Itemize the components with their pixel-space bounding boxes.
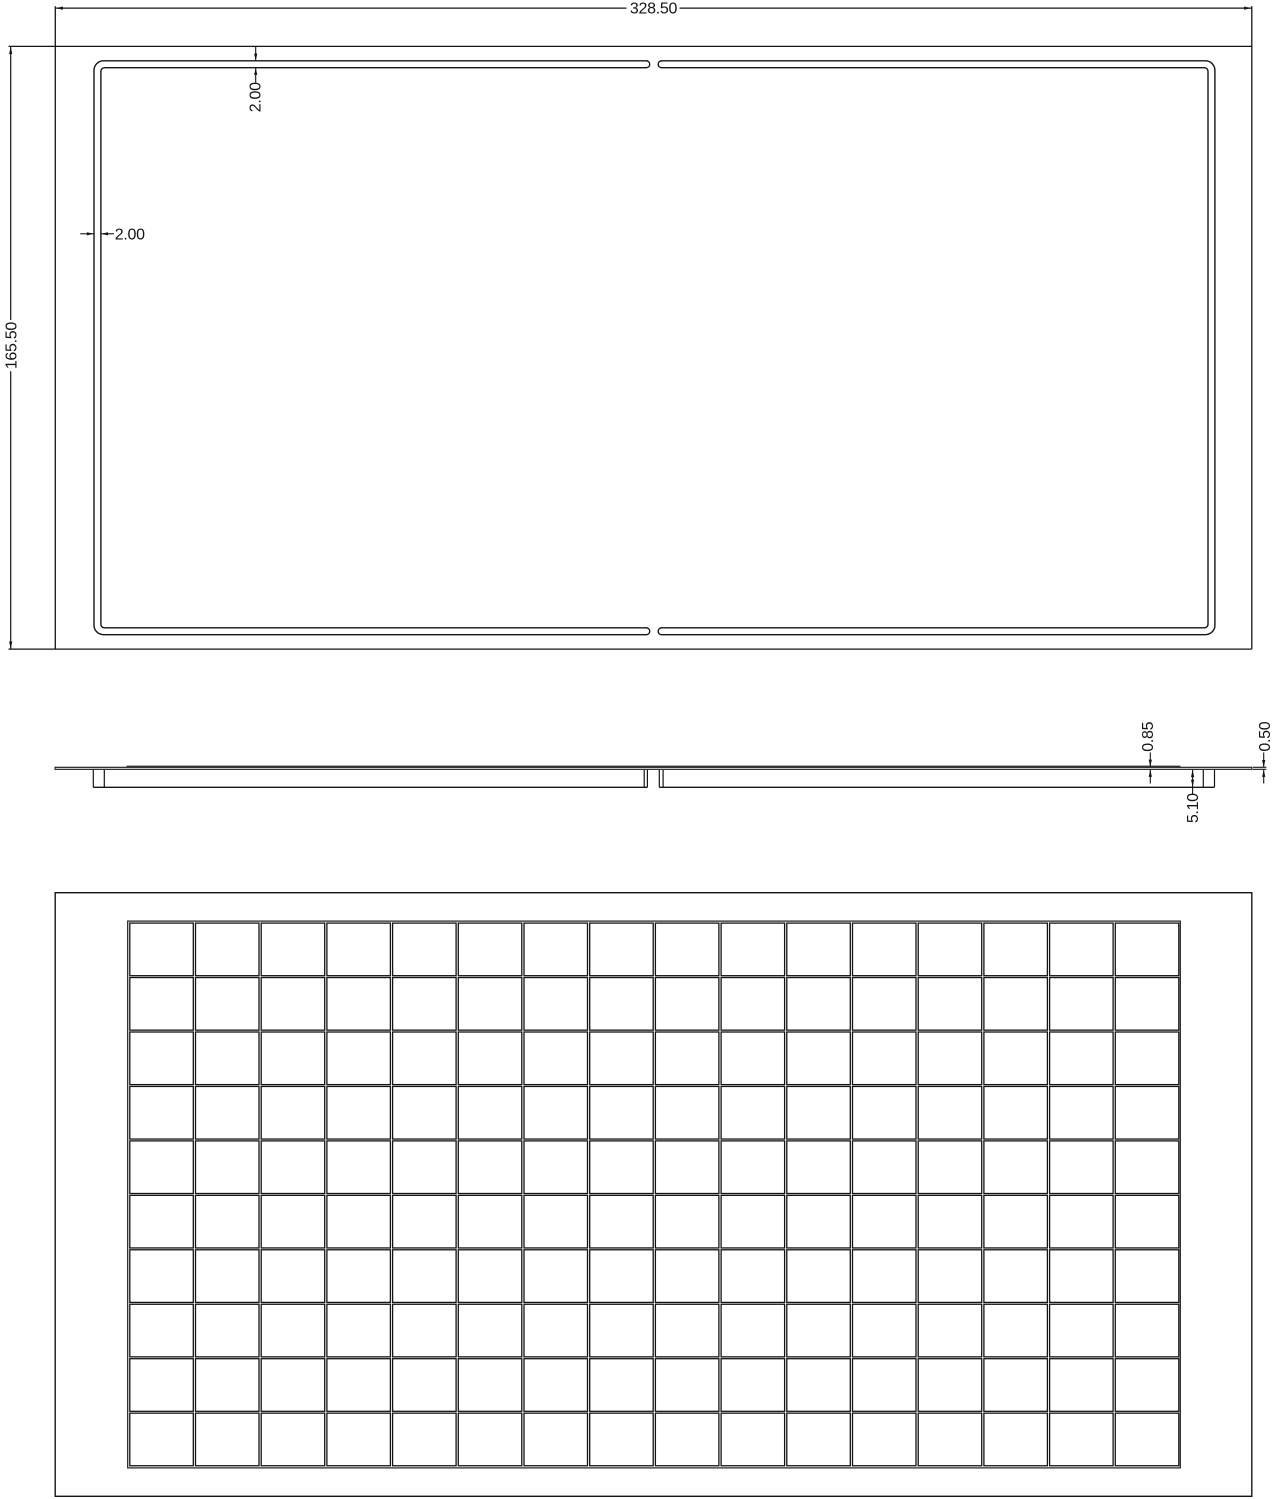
- svg-text:5.10: 5.10: [1185, 793, 1202, 823]
- svg-text:0.85: 0.85: [1140, 721, 1157, 751]
- svg-text:165.50: 165.50: [4, 322, 21, 370]
- svg-text:328.50: 328.50: [630, 1, 678, 18]
- svg-text:0.50: 0.50: [1257, 721, 1272, 751]
- svg-text:2.00: 2.00: [247, 82, 264, 112]
- svg-text:2.00: 2.00: [115, 226, 145, 243]
